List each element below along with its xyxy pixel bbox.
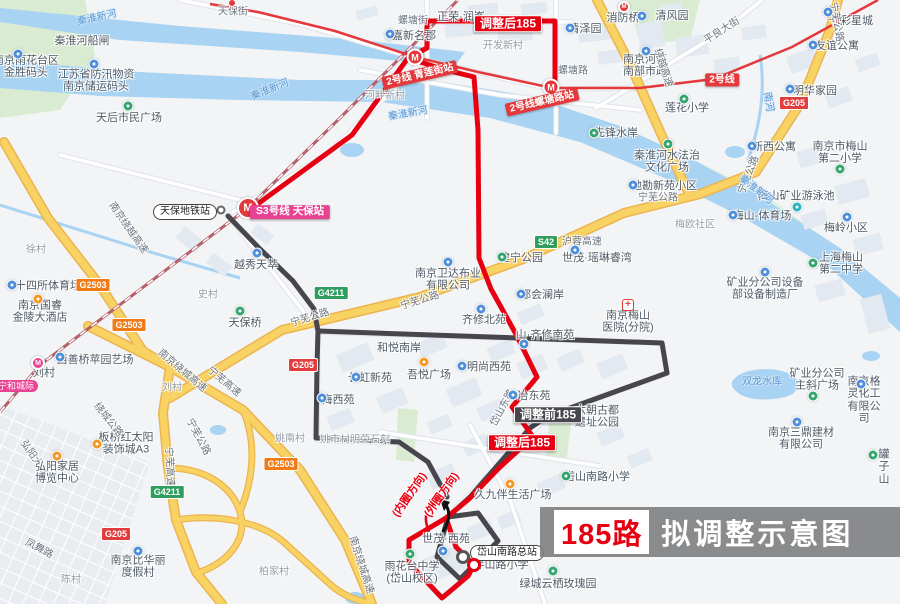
place-label: 明尚西苑 xyxy=(467,361,511,373)
road-number-badge: S42 xyxy=(534,235,558,249)
poi-icon xyxy=(443,257,454,268)
place-label: 吾悦广场 xyxy=(407,369,451,381)
place-label: 久九伴生活广场 xyxy=(475,489,552,501)
place-label: 柏家村 xyxy=(259,566,289,577)
poi-icon xyxy=(385,29,396,40)
place-label: 南京国睿 金陵大酒店 xyxy=(13,300,68,325)
loop-direction-label: (内圈方向) xyxy=(390,470,430,519)
poi-icon xyxy=(548,566,559,577)
metro-station-icon xyxy=(228,0,236,7)
poi-icon xyxy=(792,202,803,213)
poi-icon xyxy=(33,294,44,305)
place-label: 和悦南岸 xyxy=(377,342,421,354)
terminus-before-icon xyxy=(456,550,470,564)
place-label: 史村 xyxy=(198,289,218,300)
bus-stop-bubble: 天保地铁站 xyxy=(153,204,217,220)
place-label: 嘉新名郡 xyxy=(392,30,436,42)
road-number-badge: G2503 xyxy=(263,457,298,471)
route-badge-adjusted-after: 调整后185 xyxy=(474,15,542,32)
route-number: 185路 xyxy=(554,510,649,554)
place-label: 上海梅山 第二中学 xyxy=(819,252,863,277)
poi-icon xyxy=(52,451,63,462)
place-label: 七彩星城 xyxy=(829,15,873,27)
place-label: 岱山南路小学 xyxy=(564,471,630,483)
place-label: 梅欧社区 xyxy=(675,219,715,230)
road-number-badge: G2503 xyxy=(111,318,146,332)
metro-station-icon: M xyxy=(543,79,560,96)
place-label: 十四所体育场 xyxy=(15,280,81,292)
road-label: 宁芜高速 xyxy=(205,365,243,399)
metro-station-icon: M xyxy=(618,1,630,13)
place-label: 都会澜岸 xyxy=(520,289,564,301)
place-label: 弘阳家居 博览中心 xyxy=(35,461,79,486)
place-label: 西善桥苹园艺场 xyxy=(57,354,134,366)
water-label: 秦淮新河 xyxy=(737,173,775,206)
water-label: 南河 xyxy=(761,91,775,113)
place-label: 清泽园 xyxy=(569,23,602,35)
poi-icon xyxy=(570,245,581,256)
terminus-after-icon xyxy=(467,558,481,572)
poi-icon xyxy=(561,471,572,482)
place-label: 梅山-体育场 xyxy=(733,210,792,222)
place-label: 秦淮河船闸 xyxy=(55,35,110,47)
poi-icon xyxy=(679,94,690,105)
road-label: 宁芜高速 xyxy=(162,447,175,488)
road-label: 宁芜公路 xyxy=(289,307,331,329)
poi-icon xyxy=(516,289,527,300)
map-canvas[interactable]: 秦淮新河秦淮河船闸南京雨花台区 金胜码头江苏省防汛物资 南京储运码头秦淮新河天后… xyxy=(0,0,900,604)
road-label: 南京绕城高速 xyxy=(346,535,375,596)
poi-icon xyxy=(641,46,652,57)
poi-icon xyxy=(92,439,103,450)
water-label: 秦淮新河 xyxy=(387,105,428,123)
metro-line-name-badge: 宁和城际 xyxy=(0,380,38,392)
road-label: 岱山东路 xyxy=(489,388,518,429)
poi-icon xyxy=(637,11,648,22)
place-label: 地勘新苑小区 xyxy=(631,180,697,192)
poi-icon xyxy=(419,357,430,368)
poi-icon xyxy=(508,390,519,401)
poi-icon xyxy=(133,546,144,557)
poi-icon xyxy=(808,391,819,402)
poi-icon xyxy=(519,339,530,350)
poi-icon xyxy=(856,379,867,390)
place-label: 梅西苑 xyxy=(322,394,355,406)
place-label: 南京梅山 医院(分院) xyxy=(602,310,653,335)
place-label: 天后市民广场 xyxy=(96,112,162,124)
place-label: 齐修北苑 xyxy=(462,314,506,326)
poi-icon xyxy=(457,361,468,372)
place-label: 天保桥 xyxy=(229,317,262,329)
place-label: 新西公寓 xyxy=(752,141,796,153)
bus-stop-bubble: 岱山南路总站 xyxy=(470,545,544,561)
poi-icon xyxy=(808,40,819,51)
place-label: 山·齐修南苑 xyxy=(516,329,575,341)
place-label: 开发新村 xyxy=(483,40,523,51)
poi-icon xyxy=(747,141,758,152)
hospital-icon: + xyxy=(622,299,634,311)
poi-icon xyxy=(476,304,487,315)
poi-icon xyxy=(405,549,416,560)
poi-icon xyxy=(252,248,263,259)
place-label: 伴山路小学 xyxy=(474,559,529,571)
place-label: 南京三鼎建材 有限公司 xyxy=(768,427,834,452)
place-label: 梅岭小区 xyxy=(824,222,868,234)
place-label: 罐子山 xyxy=(876,449,892,486)
water-label: 秦淮新河 xyxy=(249,77,290,102)
place-label: 长虹新苑 xyxy=(348,372,392,384)
poi-icon xyxy=(785,84,796,95)
metro-station-icon: M xyxy=(31,356,45,370)
poi-icon xyxy=(235,306,246,317)
place-label: 矿业分公司 主斜广场 xyxy=(790,368,845,393)
route-badge-adjusted-before: 调整前185 xyxy=(514,406,582,423)
diagram-title: 拟调整示意图 xyxy=(661,511,853,553)
place-label: 南京市梅山 第二小学 xyxy=(813,141,868,166)
metro-station-badge: 2号线 青莲街站 xyxy=(381,60,458,90)
place-label: 冶东苑 xyxy=(518,390,551,402)
poi-icon xyxy=(760,267,771,278)
place-label: 清风园 xyxy=(656,10,689,22)
poi-icon xyxy=(663,139,674,150)
road-label: 宁芜公路 xyxy=(827,1,845,42)
poi-icon xyxy=(317,393,328,404)
poi-icon xyxy=(89,59,100,70)
road-number-badge: G205 xyxy=(101,527,131,541)
place-label: 姚南村 xyxy=(275,433,305,444)
road-label: 凤舞路 xyxy=(23,537,55,561)
road-label: 平良大街 xyxy=(702,16,742,47)
road-label: 宁芜公路 xyxy=(638,192,678,203)
road-label: 南京绕越高速 xyxy=(106,200,150,256)
road-number-badge: G205 xyxy=(779,96,809,110)
place-label: 南京河西 南部市政 xyxy=(623,54,667,79)
poi-icon xyxy=(565,23,576,34)
diagram-title-banner: 185路 拟调整示意图 xyxy=(540,507,900,557)
place-label: 板桥红太阳 装饰城A3 xyxy=(99,432,154,457)
poi-icon xyxy=(728,210,739,221)
place-label: 绿城云栖玫瑰园 xyxy=(520,578,597,590)
poi-icon xyxy=(497,252,508,263)
place-label: 徐村 xyxy=(26,244,46,255)
place-label: 莲花小学 xyxy=(665,102,709,114)
place-label: 世茂·西苑 xyxy=(422,533,470,545)
loop-direction-label: (外圈方向) xyxy=(422,470,462,519)
poi-icon xyxy=(823,7,834,18)
poi-icon xyxy=(7,280,18,291)
poi-icon xyxy=(868,450,879,461)
place-label: 江苏省防汛物资 南京储运码头 xyxy=(58,69,135,94)
poi-icon xyxy=(351,372,362,383)
place-label: 刘村 xyxy=(162,382,182,393)
place-label: 南京雨花台区 金胜码头 xyxy=(0,55,59,80)
place-label: 世茂·瑶琳睿湾 xyxy=(562,252,632,264)
poi-icon xyxy=(835,164,846,175)
poi-icon xyxy=(438,546,449,557)
metro-station-badge: S3号线 天保站 xyxy=(250,205,330,219)
place-label: 友谊公寓 xyxy=(815,40,859,52)
poi-icon xyxy=(123,101,134,112)
road-label: 沪蓉高速 xyxy=(562,236,602,247)
place-label: 先锋水岸 xyxy=(594,127,638,139)
water-label: 秦淮新河 xyxy=(76,8,117,27)
road-number-badge: G4211 xyxy=(314,286,349,300)
road-label: 螺塘街 xyxy=(398,15,428,26)
road-label: 天保街 xyxy=(218,6,248,17)
place-label: 雨花台中学 (岱山校区) xyxy=(385,561,440,586)
water-label: 双龙水库 xyxy=(742,376,782,387)
place-label: 正荣·润峯 xyxy=(437,11,485,23)
poi-icon xyxy=(55,352,66,363)
place-label: 姚市村明荣石刻 xyxy=(320,434,390,445)
road-number-badge: G205 xyxy=(288,358,318,372)
metro-station-badge: 2号线 xyxy=(705,73,739,86)
road-label: 宁芜公路 xyxy=(399,290,441,312)
place-label: 明华家园 xyxy=(793,85,837,97)
road-label: 绕越高速 xyxy=(651,47,674,88)
poi-icon xyxy=(505,479,516,490)
poi-icon xyxy=(13,49,24,60)
road-label: 宁芜公路 xyxy=(736,154,761,195)
place-label: 南京卫达布业 有限公司 xyxy=(415,268,481,293)
road-label: 绕城公路 xyxy=(91,401,124,439)
place-label: 秦淮河水法治 文化广场 xyxy=(634,150,700,175)
road-label: 弘阳大道 xyxy=(18,438,50,477)
place-label: 梅山矿业游泳池 xyxy=(758,190,835,202)
road-number-badge: G4211 xyxy=(150,485,185,499)
road-label: 南京绕城高速 xyxy=(155,347,208,394)
road-label: 螺塘路 xyxy=(558,65,588,76)
place-label: 河畔新村 xyxy=(365,90,405,101)
metro-station-badge: 2号线螺塘路站 xyxy=(505,87,580,116)
bus-stop-icon xyxy=(217,206,226,215)
place-label: 矿业分公司设备 部设备制造厂 xyxy=(727,277,804,302)
poi-icon xyxy=(792,417,803,428)
place-label: 陈村 xyxy=(61,574,81,585)
place-label: 越秀天萃 xyxy=(234,259,278,271)
place-label: 建宁公园 xyxy=(499,252,543,264)
route-badge-adjusted-after: 调整后185 xyxy=(488,434,556,451)
place-label: 消防桥 xyxy=(607,12,640,24)
poi-icon xyxy=(808,258,819,269)
place-label: 南京比华丽 度假村 xyxy=(111,555,166,580)
road-label: 宁芜公路 xyxy=(184,417,213,458)
road-number-badge: G2503 xyxy=(75,278,110,292)
place-label: 南京格灵化工 有限公司 xyxy=(846,375,882,424)
metro-station-icon: M xyxy=(237,197,259,219)
poi-icon xyxy=(842,212,853,223)
place-label: 六朝古都 遗址公园 xyxy=(575,405,619,430)
place-label: 刘村 xyxy=(33,367,55,379)
poi-icon xyxy=(628,180,639,191)
poi-icon xyxy=(589,128,600,139)
metro-station-icon: M xyxy=(407,49,424,66)
